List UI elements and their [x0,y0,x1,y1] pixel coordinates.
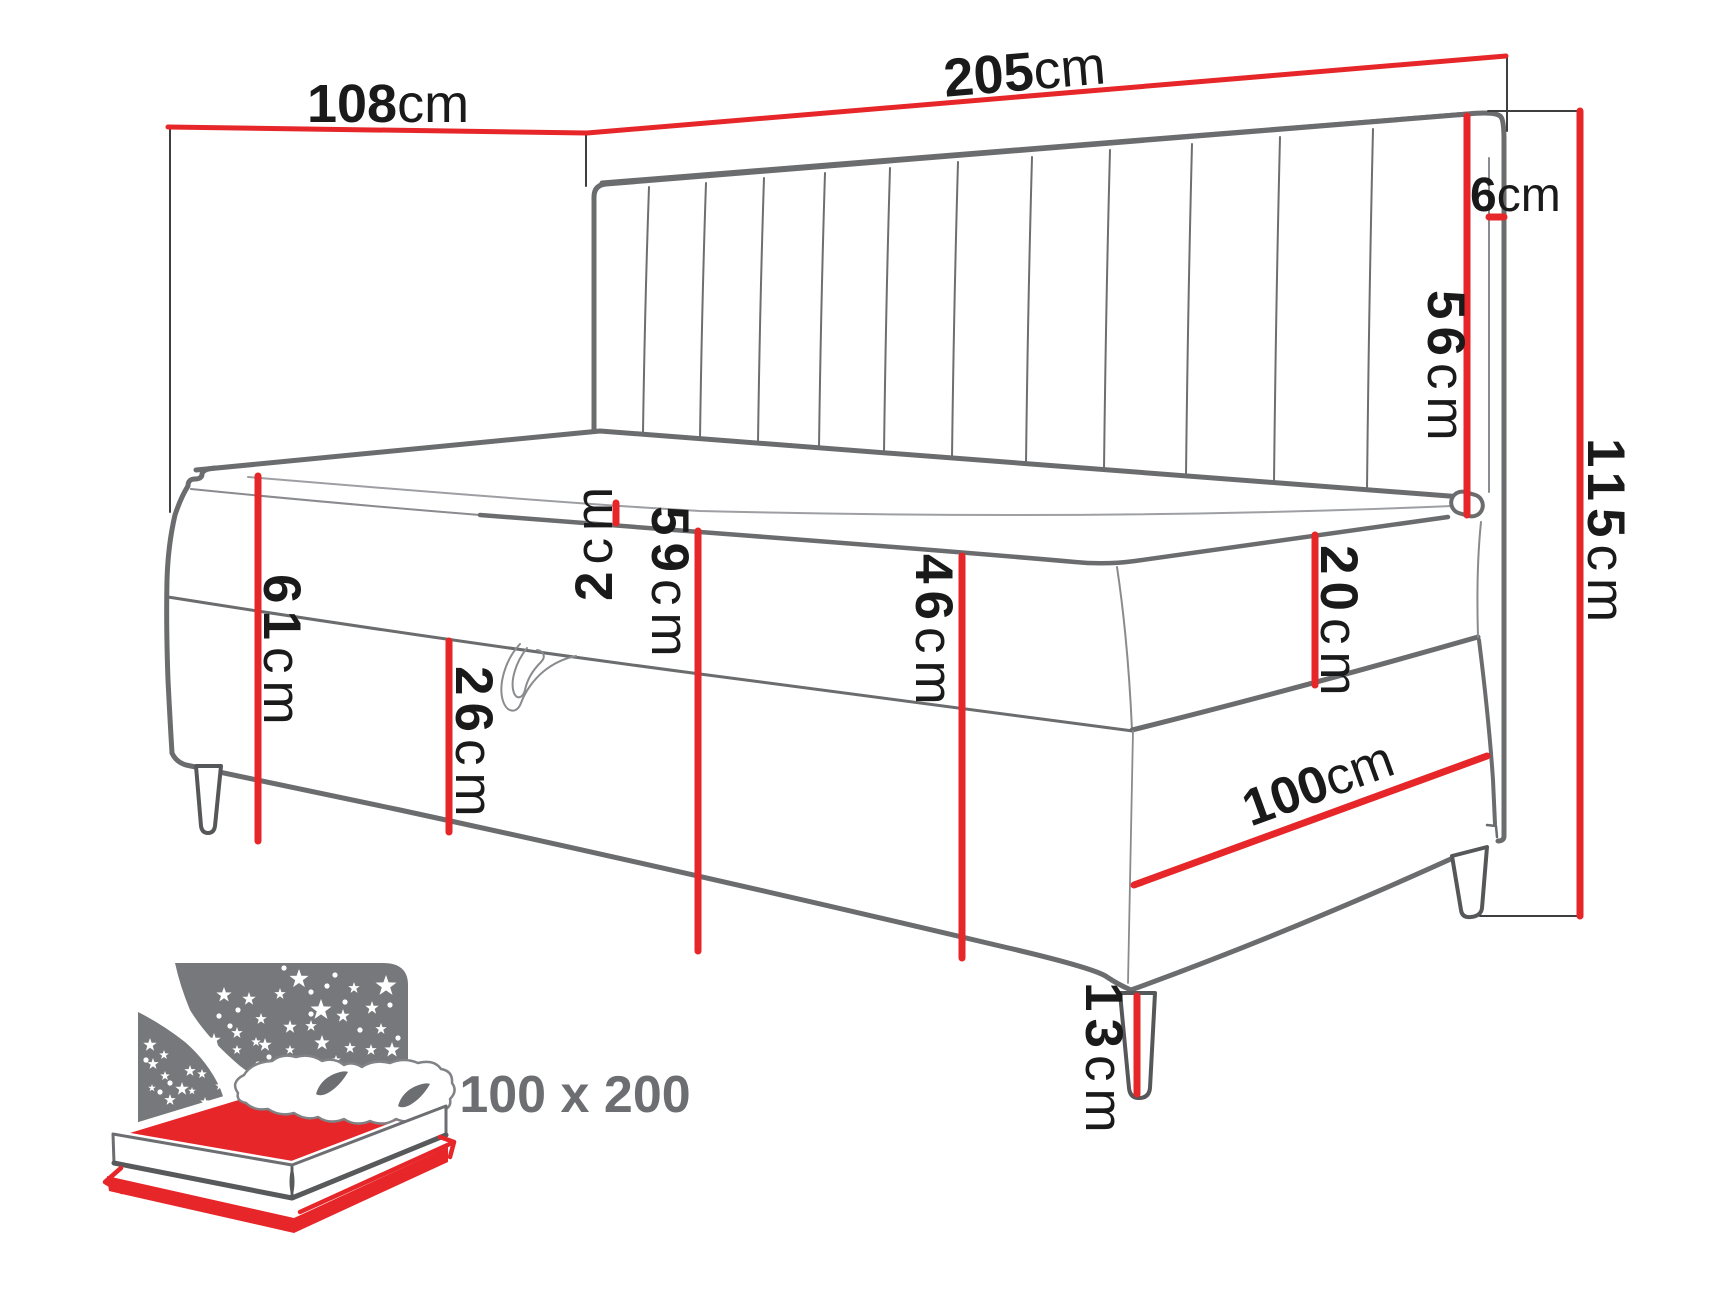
svg-text:56cm: 56cm [1416,290,1475,448]
svg-text:26cm: 26cm [444,666,503,824]
svg-text:108cm: 108cm [307,74,469,134]
svg-text:20cm: 20cm [1309,545,1368,703]
svg-text:6cm: 6cm [1470,169,1561,222]
svg-text:59cm: 59cm [640,506,699,664]
svg-text:2cm: 2cm [565,480,624,601]
svg-text:205cm: 205cm [941,35,1108,108]
svg-text:100cm: 100cm [1235,730,1402,838]
svg-text:100 x 200: 100 x 200 [459,1066,690,1124]
svg-text:61cm: 61cm [252,574,311,732]
svg-text:46cm: 46cm [904,554,963,712]
svg-text:13cm: 13cm [1074,982,1133,1140]
svg-text:115cm: 115cm [1576,438,1635,629]
